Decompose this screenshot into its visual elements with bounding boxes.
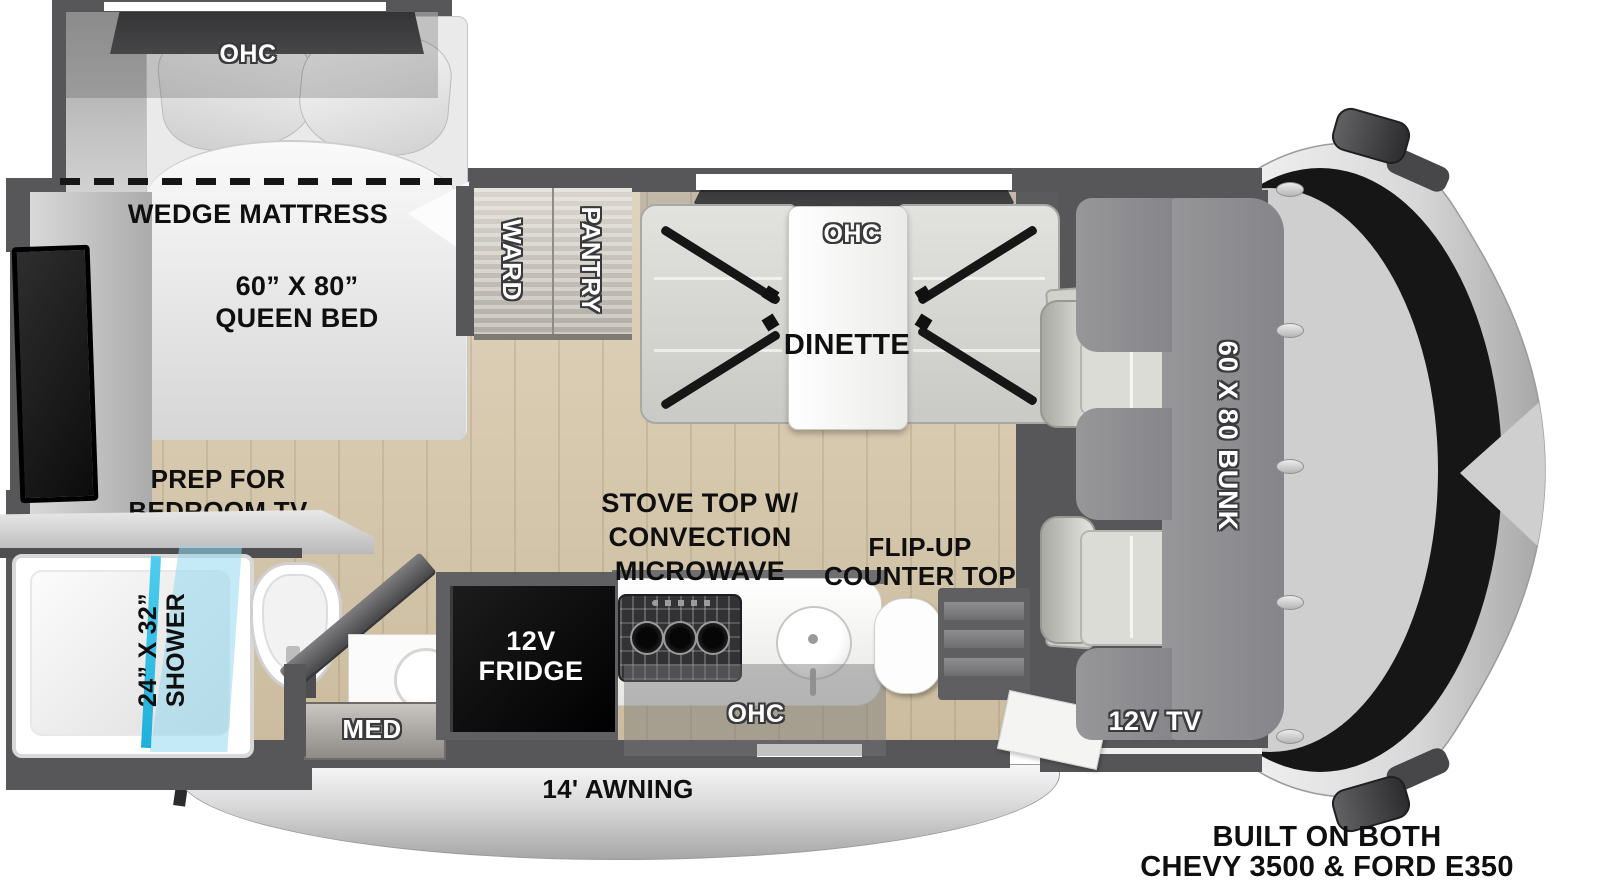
shower-label: SHOWER [161, 550, 192, 750]
ward-wall [456, 186, 474, 336]
marker-light-icon [1276, 729, 1304, 744]
stove-label-line3: MICROWAVE [560, 555, 840, 588]
bunk-console [1076, 408, 1172, 520]
flip-up-counter [874, 598, 942, 694]
marker-light-icon [1276, 323, 1304, 338]
bunk-label: 60 X 80 BUNK [1213, 311, 1243, 561]
slide-wall-left [52, 0, 66, 194]
cabinet-divider [552, 188, 554, 334]
kitchen-ohc-label: OHC [716, 700, 796, 729]
cab-tv-label: 12V TV [1085, 706, 1225, 737]
marker-light-icon [1276, 182, 1304, 197]
dinette-label: DINETTE [757, 328, 937, 363]
stove-label-line2: CONVECTION [560, 521, 840, 554]
stove-label-line1: STOVE TOP W/ [560, 487, 840, 520]
awning-label: 14' AWNING [518, 774, 718, 806]
bedroom-tv [12, 245, 99, 504]
sink-drain-icon [808, 634, 818, 644]
rv-floorplan-canvas: 14' AWNING [0, 0, 1600, 890]
bunk-top-left [1076, 198, 1172, 352]
wedge-mattress-label: WEDGE MATTRESS [108, 198, 408, 231]
flip-up-label-line1: FLIP-UP [800, 532, 1040, 564]
wall-bottom-bath [6, 764, 312, 790]
bedroom-ohc-label: OHC [210, 40, 286, 69]
prep-tv-label-line1: PREP FOR [98, 464, 338, 496]
dinette-ohc-label: OHC [812, 220, 892, 249]
entry-steps [938, 588, 1030, 700]
med-label: MED [312, 714, 432, 745]
flip-up-label-line2: COUNTER TOP [800, 561, 1040, 593]
stove-burner-icon [630, 621, 664, 655]
marker-light-icon [1276, 459, 1304, 474]
bath-wall-stub [284, 664, 306, 756]
window-dinette [696, 174, 1012, 190]
stove-burner-icon [663, 621, 697, 655]
slide-dash-line [60, 178, 452, 185]
pantry-label: PANTRY [578, 190, 606, 330]
queen-bed-type-label: QUEEN BED [177, 302, 417, 335]
stove-burner-icon [696, 621, 730, 655]
window-rear [0, 252, 10, 490]
fridge-label-line2: FRIDGE [461, 656, 601, 687]
ward-label: WARD [499, 190, 527, 330]
window-bedroom-slide [104, 2, 386, 11]
marker-light-icon [1276, 595, 1304, 610]
shower-label-block: 24” X 32” SHOWER [133, 550, 191, 750]
queen-bed-size-label: 60” X 80” [177, 270, 417, 303]
stove-knobs [652, 600, 714, 606]
shower-size-label: 24” X 32” [133, 550, 164, 750]
fridge-label-line1: 12V [461, 626, 601, 657]
chassis-note-line2: CHEVY 3500 & FORD E350 [1107, 850, 1547, 885]
